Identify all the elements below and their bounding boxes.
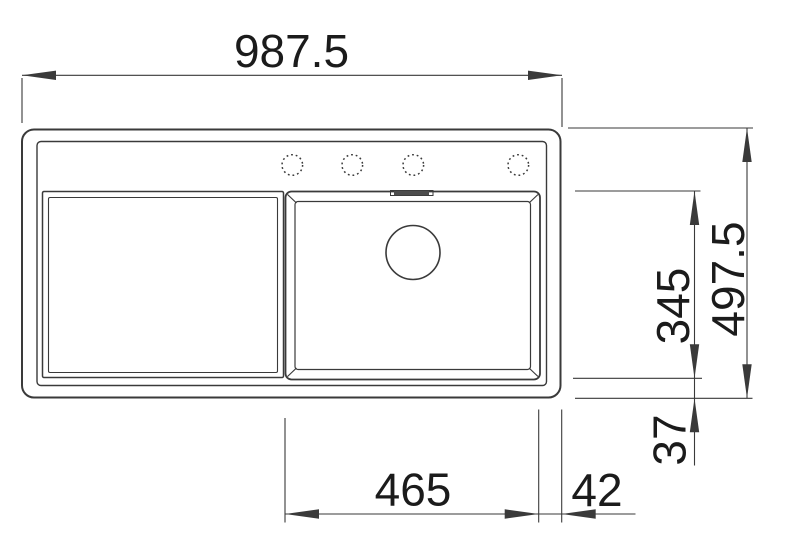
dim-overall-width-arrow-right [528,71,562,80]
dim-overall-depth-arrow-bottom [742,364,751,398]
bowl-outer-edge [286,192,541,380]
dim-overall-depth-label: 497.5 [702,221,754,336]
drainboard-outer-edge [43,192,284,378]
drawing-canvas: 987.5 497.5 345 37 [0,0,800,539]
faucet-holes [282,155,529,176]
bowl-inner-edge [295,202,531,370]
overflow-slot [391,191,434,196]
dim-bowl-depth-arrow-bottom [690,344,699,378]
faucet-hole-1 [282,155,303,176]
dim-bowl-depth-label: 345 [647,268,699,345]
dim-overall-depth: 497.5 [568,128,754,398]
dim-bowl-right-offset: 42 [562,410,623,523]
dim-bowl-bottom-offset: 37 [644,378,700,465]
sink-body [22,130,561,398]
bowl-bevel-top-left [288,195,297,204]
faucet-hole-3 [403,155,424,176]
dim-bowl-right-offset-label: 42 [571,464,622,516]
bowl-bevel-bottom-right [529,368,538,377]
dim-bowl-bottom-offset-label: 37 [644,414,696,465]
drain-hole [386,226,440,280]
dim-overall-width-arrow-left [22,71,56,80]
dimension-annotations: 987.5 497.5 345 37 [22,25,754,523]
sink-dimension-drawing: 987.5 497.5 345 37 [0,0,800,539]
drainboard [43,192,284,378]
bowl-bevel-top-right [529,195,538,204]
drainboard-inner-edge [49,198,278,373]
faucet-hole-4 [508,155,529,176]
overflow-slot-fill [394,191,429,195]
sink-rim-inner-outline [37,142,547,386]
dim-overall-width-label: 987.5 [234,25,349,77]
dim-bowl-width-arrow-left [285,509,319,518]
bowl-bevel-bottom-left [288,368,297,377]
faucet-hole-2 [342,155,363,176]
dim-overall-width: 987.5 [22,25,562,127]
sink-outer-outline [22,130,561,398]
dim-bowl-depth: 345 [573,191,702,378]
dim-bowl-width-arrow-right [505,509,539,518]
dim-bowl-width-label: 465 [375,464,452,516]
dim-overall-depth-arrow-top [742,128,751,162]
dim-bowl-depth-arrow-top [690,191,699,225]
bowl [286,191,541,380]
